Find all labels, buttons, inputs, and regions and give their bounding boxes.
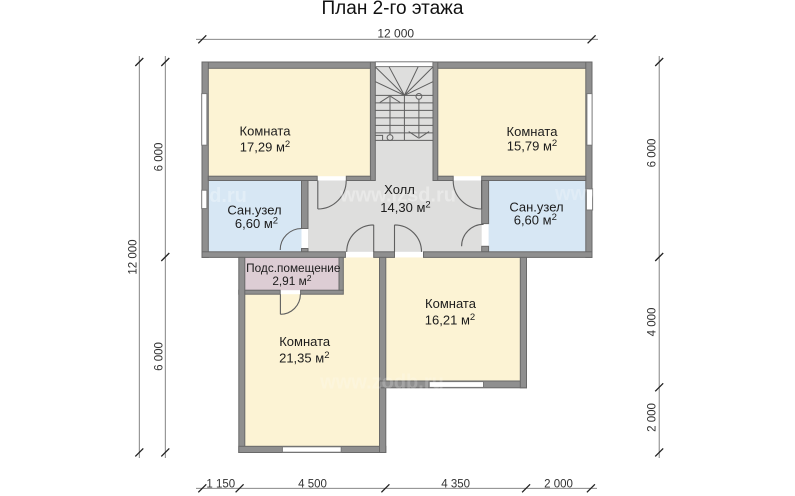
svg-text:4 350: 4 350	[441, 478, 470, 490]
svg-text:1 150: 1 150	[206, 478, 235, 490]
svg-text:Комната: Комната	[279, 334, 331, 349]
svg-text:Холл: Холл	[384, 182, 415, 197]
svg-text:Комната: Комната	[240, 123, 292, 138]
svg-text:План 2-го этажа: План 2-го этажа	[322, 0, 464, 19]
svg-text:6,60 м2: 6,60 м2	[514, 212, 557, 228]
svg-text:6,60 м2: 6,60 м2	[235, 215, 278, 231]
svg-text:12 000: 12 000	[377, 27, 414, 41]
svg-text:4 500: 4 500	[298, 478, 327, 490]
svg-text:2 000: 2 000	[544, 478, 573, 490]
svg-text:17,29 м2: 17,29 м2	[240, 139, 290, 155]
svg-text:2,91 м2: 2,91 м2	[272, 273, 311, 288]
svg-text:Комната: Комната	[507, 124, 559, 139]
svg-text:6 000: 6 000	[154, 143, 166, 172]
svg-text:21,35 м2: 21,35 м2	[279, 350, 329, 366]
svg-text:12 000: 12 000	[128, 239, 140, 274]
svg-text:6 000: 6 000	[154, 342, 166, 371]
svg-text:16,21 м2: 16,21 м2	[425, 312, 475, 328]
svg-text:14,30 м2: 14,30 м2	[380, 200, 430, 216]
svg-text:4 000: 4 000	[647, 308, 659, 337]
svg-text:www.lzsd.ru: www.lzsd.ru	[554, 183, 671, 205]
svg-text:6 000: 6 000	[647, 139, 659, 168]
svg-text:15,79 м2: 15,79 м2	[507, 138, 557, 154]
svg-text:2 000: 2 000	[647, 403, 659, 432]
svg-text:Подс.помещение: Подс.помещение	[246, 261, 341, 275]
svg-text:Комната: Комната	[425, 296, 477, 311]
svg-text:www.zodb.ru: www.zodb.ru	[319, 372, 444, 394]
